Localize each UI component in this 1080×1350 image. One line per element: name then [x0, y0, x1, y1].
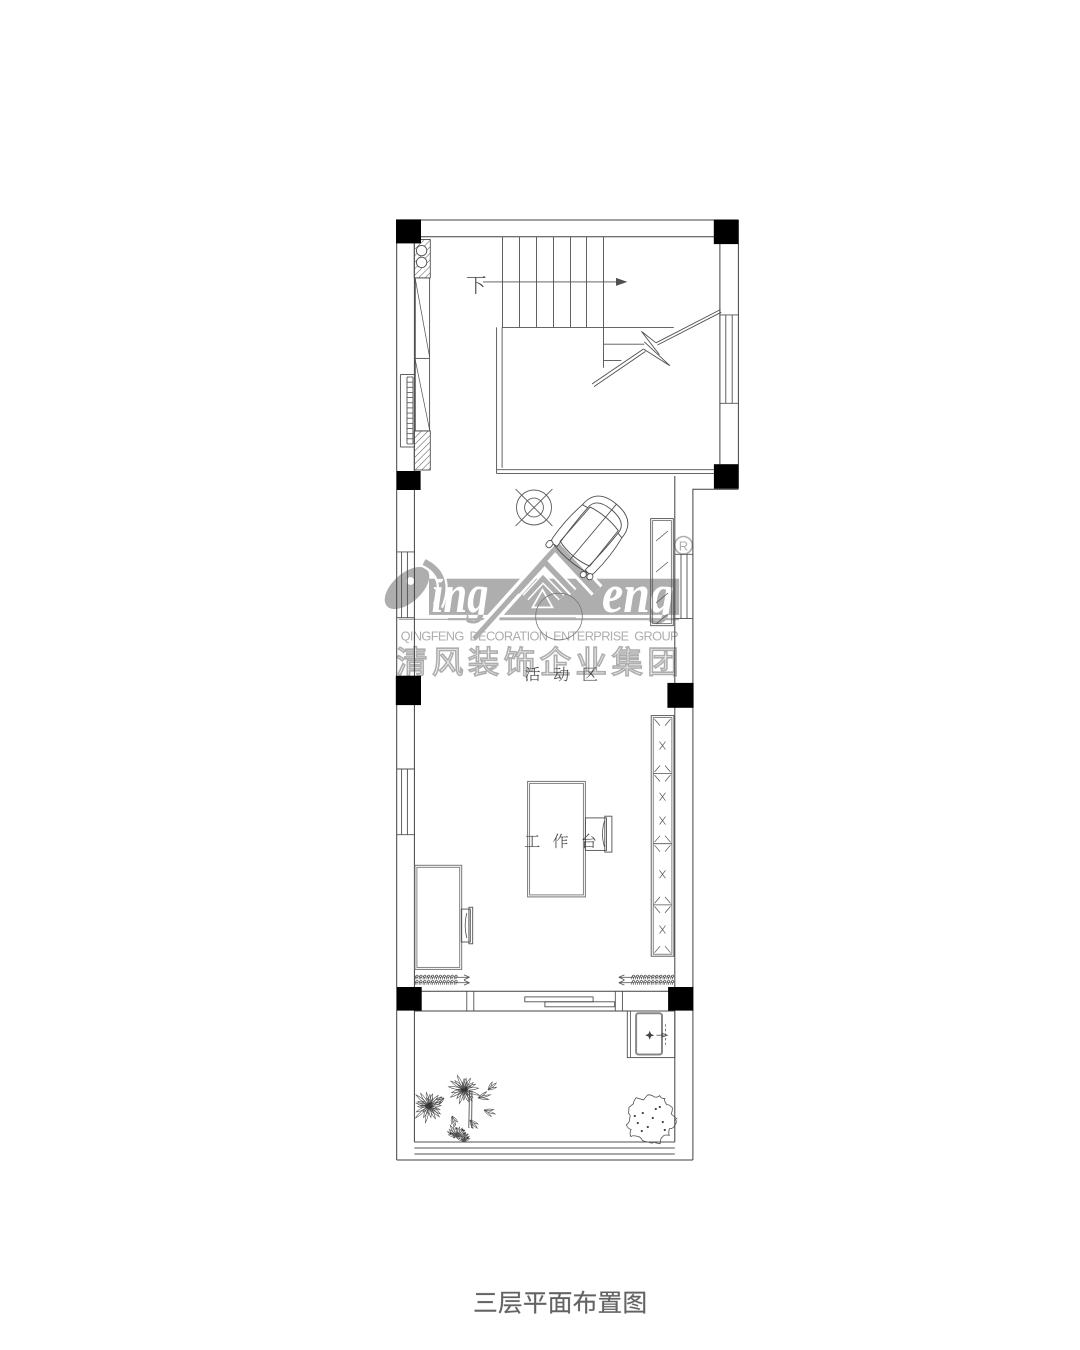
- svg-text:QINGFENG DECORATION ENTERPRISE: QINGFENG DECORATION ENTERPRISE GROUP: [401, 629, 679, 644]
- svg-text:R: R: [679, 539, 688, 554]
